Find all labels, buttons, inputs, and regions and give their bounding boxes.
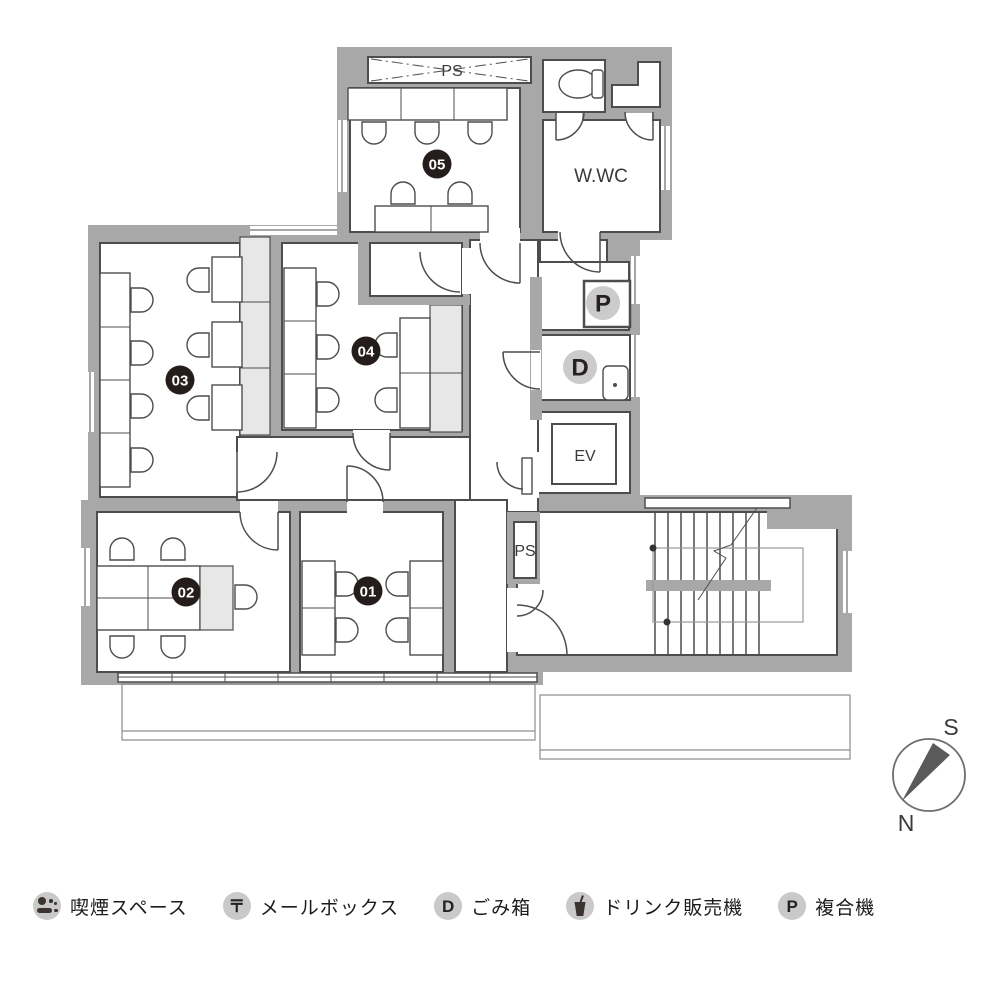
svg-text:04: 04 [358,344,375,361]
window [631,256,640,304]
ev-label: EV [574,448,596,465]
printer-circle-icon: P [778,892,806,920]
legend-item-trash: D ごみ箱 [434,892,531,920]
cabinet-room03 [240,237,270,435]
sink-icon [603,366,628,400]
inner-corridor [237,437,470,500]
ps-shaft-label: PS [514,543,535,560]
svg-text:D: D [571,355,588,382]
compass-needle [902,743,950,801]
legend-label: メールボックス [260,893,399,920]
legend-label: ごみ箱 [471,893,531,920]
vestibule [370,243,462,296]
room-02-badge: 02 [172,578,201,607]
window [338,120,347,192]
side-table [200,566,233,630]
legend-item-vending: ドリンク販売機 [566,892,743,920]
floor-plan: PS W.WC EV PS 05 03 04 02 01 P [0,0,1000,986]
floor-plan-page: PS W.WC EV PS 05 03 04 02 01 P [0,0,1000,986]
mailbox-icon: 〒 [223,892,251,920]
window [843,551,852,613]
window [250,226,337,235]
room-03-badge: 03 [166,366,195,395]
drink-cup-icon [566,892,594,920]
stair-landing [646,580,771,591]
legend-item-smoking: 喫煙スペース [33,892,188,920]
window [661,126,670,190]
trash-can-icon: D [434,892,462,920]
balconies [122,684,850,759]
window [631,335,640,397]
trash-badge: D [563,350,597,384]
entry-corridor [455,500,507,672]
window-strip [118,673,537,682]
room-01-badge: 01 [354,577,383,606]
legend-label: ドリンク販売機 [603,893,743,920]
svg-text:05: 05 [429,157,446,174]
room02-desks [97,566,233,630]
printer-badge: P [586,286,620,320]
cabinet-room04 [430,305,462,432]
compass-south: S [943,714,958,740]
ps-duct-label: PS [441,63,462,80]
svg-text:P: P [595,291,611,318]
legend-item-printer: P 複合機 [778,892,875,920]
window [81,548,90,606]
compass: S N [893,714,965,836]
window [645,498,790,508]
svg-text:02: 02 [178,585,195,602]
svg-text:01: 01 [360,584,377,601]
window [86,372,94,432]
room-05-badge: 05 [423,150,452,179]
legend-label: 喫煙スペース [70,893,188,920]
smoking-icon [33,892,61,920]
legend-item-mailbox: 〒 メールボックス [223,892,399,920]
compass-north: N [898,810,915,836]
legend-label: 複合機 [815,893,875,920]
wwc-label: W.WC [574,166,628,187]
svg-text:03: 03 [172,373,189,390]
legend: 喫煙スペース 〒 メールボックス D ごみ箱 ドリンク販売機 P 複合機 [33,892,875,920]
hall-upper-right [540,240,607,262]
toilet-icon [559,70,603,98]
room-04-badge: 04 [352,337,381,366]
